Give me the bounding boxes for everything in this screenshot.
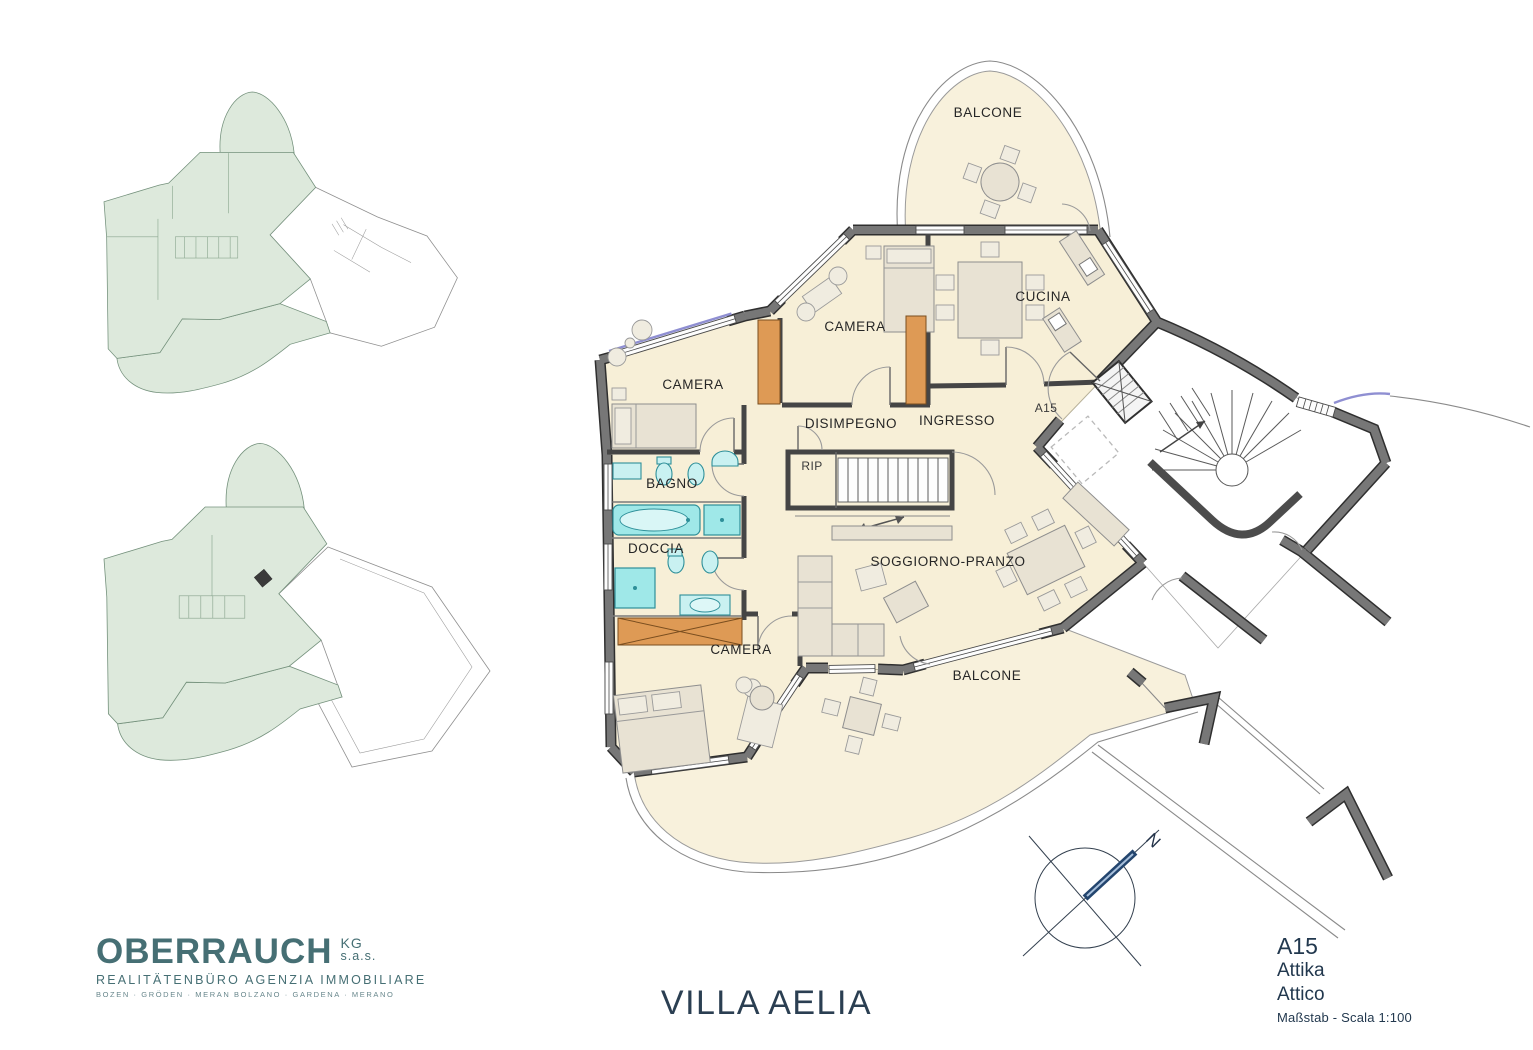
room-label-cucina: CUCINA [1015,289,1070,304]
agency-name: OBERRAUCH [96,934,333,969]
info-scale: Maßstab - Scala 1:100 [1277,1010,1412,1025]
room-label-soggiorno: SOGGIORNO-PRANZO [870,554,1025,569]
room-label-unit: A15 [1035,401,1058,415]
room-label-bagno: BAGNO [646,476,698,491]
overview-plan-top [104,92,457,393]
room-label-balcone-top: BALCONE [954,105,1023,120]
agency-sas: s.a.s. [341,950,377,963]
room-label-disimpegno: DISIMPEGNO [805,416,897,431]
info-floor-it: Attico [1277,983,1412,1006]
room-label-rip: RIP [801,459,822,473]
agency-kg: KG [341,936,377,950]
room-label-camera-bottom: CAMERA [710,642,771,657]
overview-plan-bottom [104,443,490,767]
room-label-camera-top: CAMERA [824,319,885,334]
room-label-camera-left: CAMERA [662,377,723,392]
main-plan: BALCONE CUCINA CAMERA CAMERA DISIMPEGNO … [600,61,1530,966]
room-label-ingresso: INGRESSO [919,413,995,428]
floorplan-drawing: BALCONE CUCINA CAMERA CAMERA DISIMPEGNO … [0,0,1533,1050]
compass-north-label: N [1142,829,1164,851]
sheet-info: A15 Attika Attico Maßstab - Scala 1:100 [1277,933,1412,1025]
room-label-balcone-bottom: BALCONE [953,668,1022,683]
info-unit: A15 [1277,933,1412,959]
info-floor-de: Attika [1277,959,1412,982]
room-label-doccia: DOCCIA [628,541,684,556]
compass-icon: N [1023,829,1164,966]
floorplan-sheet: BALCONE CUCINA CAMERA CAMERA DISIMPEGNO … [0,0,1533,1050]
